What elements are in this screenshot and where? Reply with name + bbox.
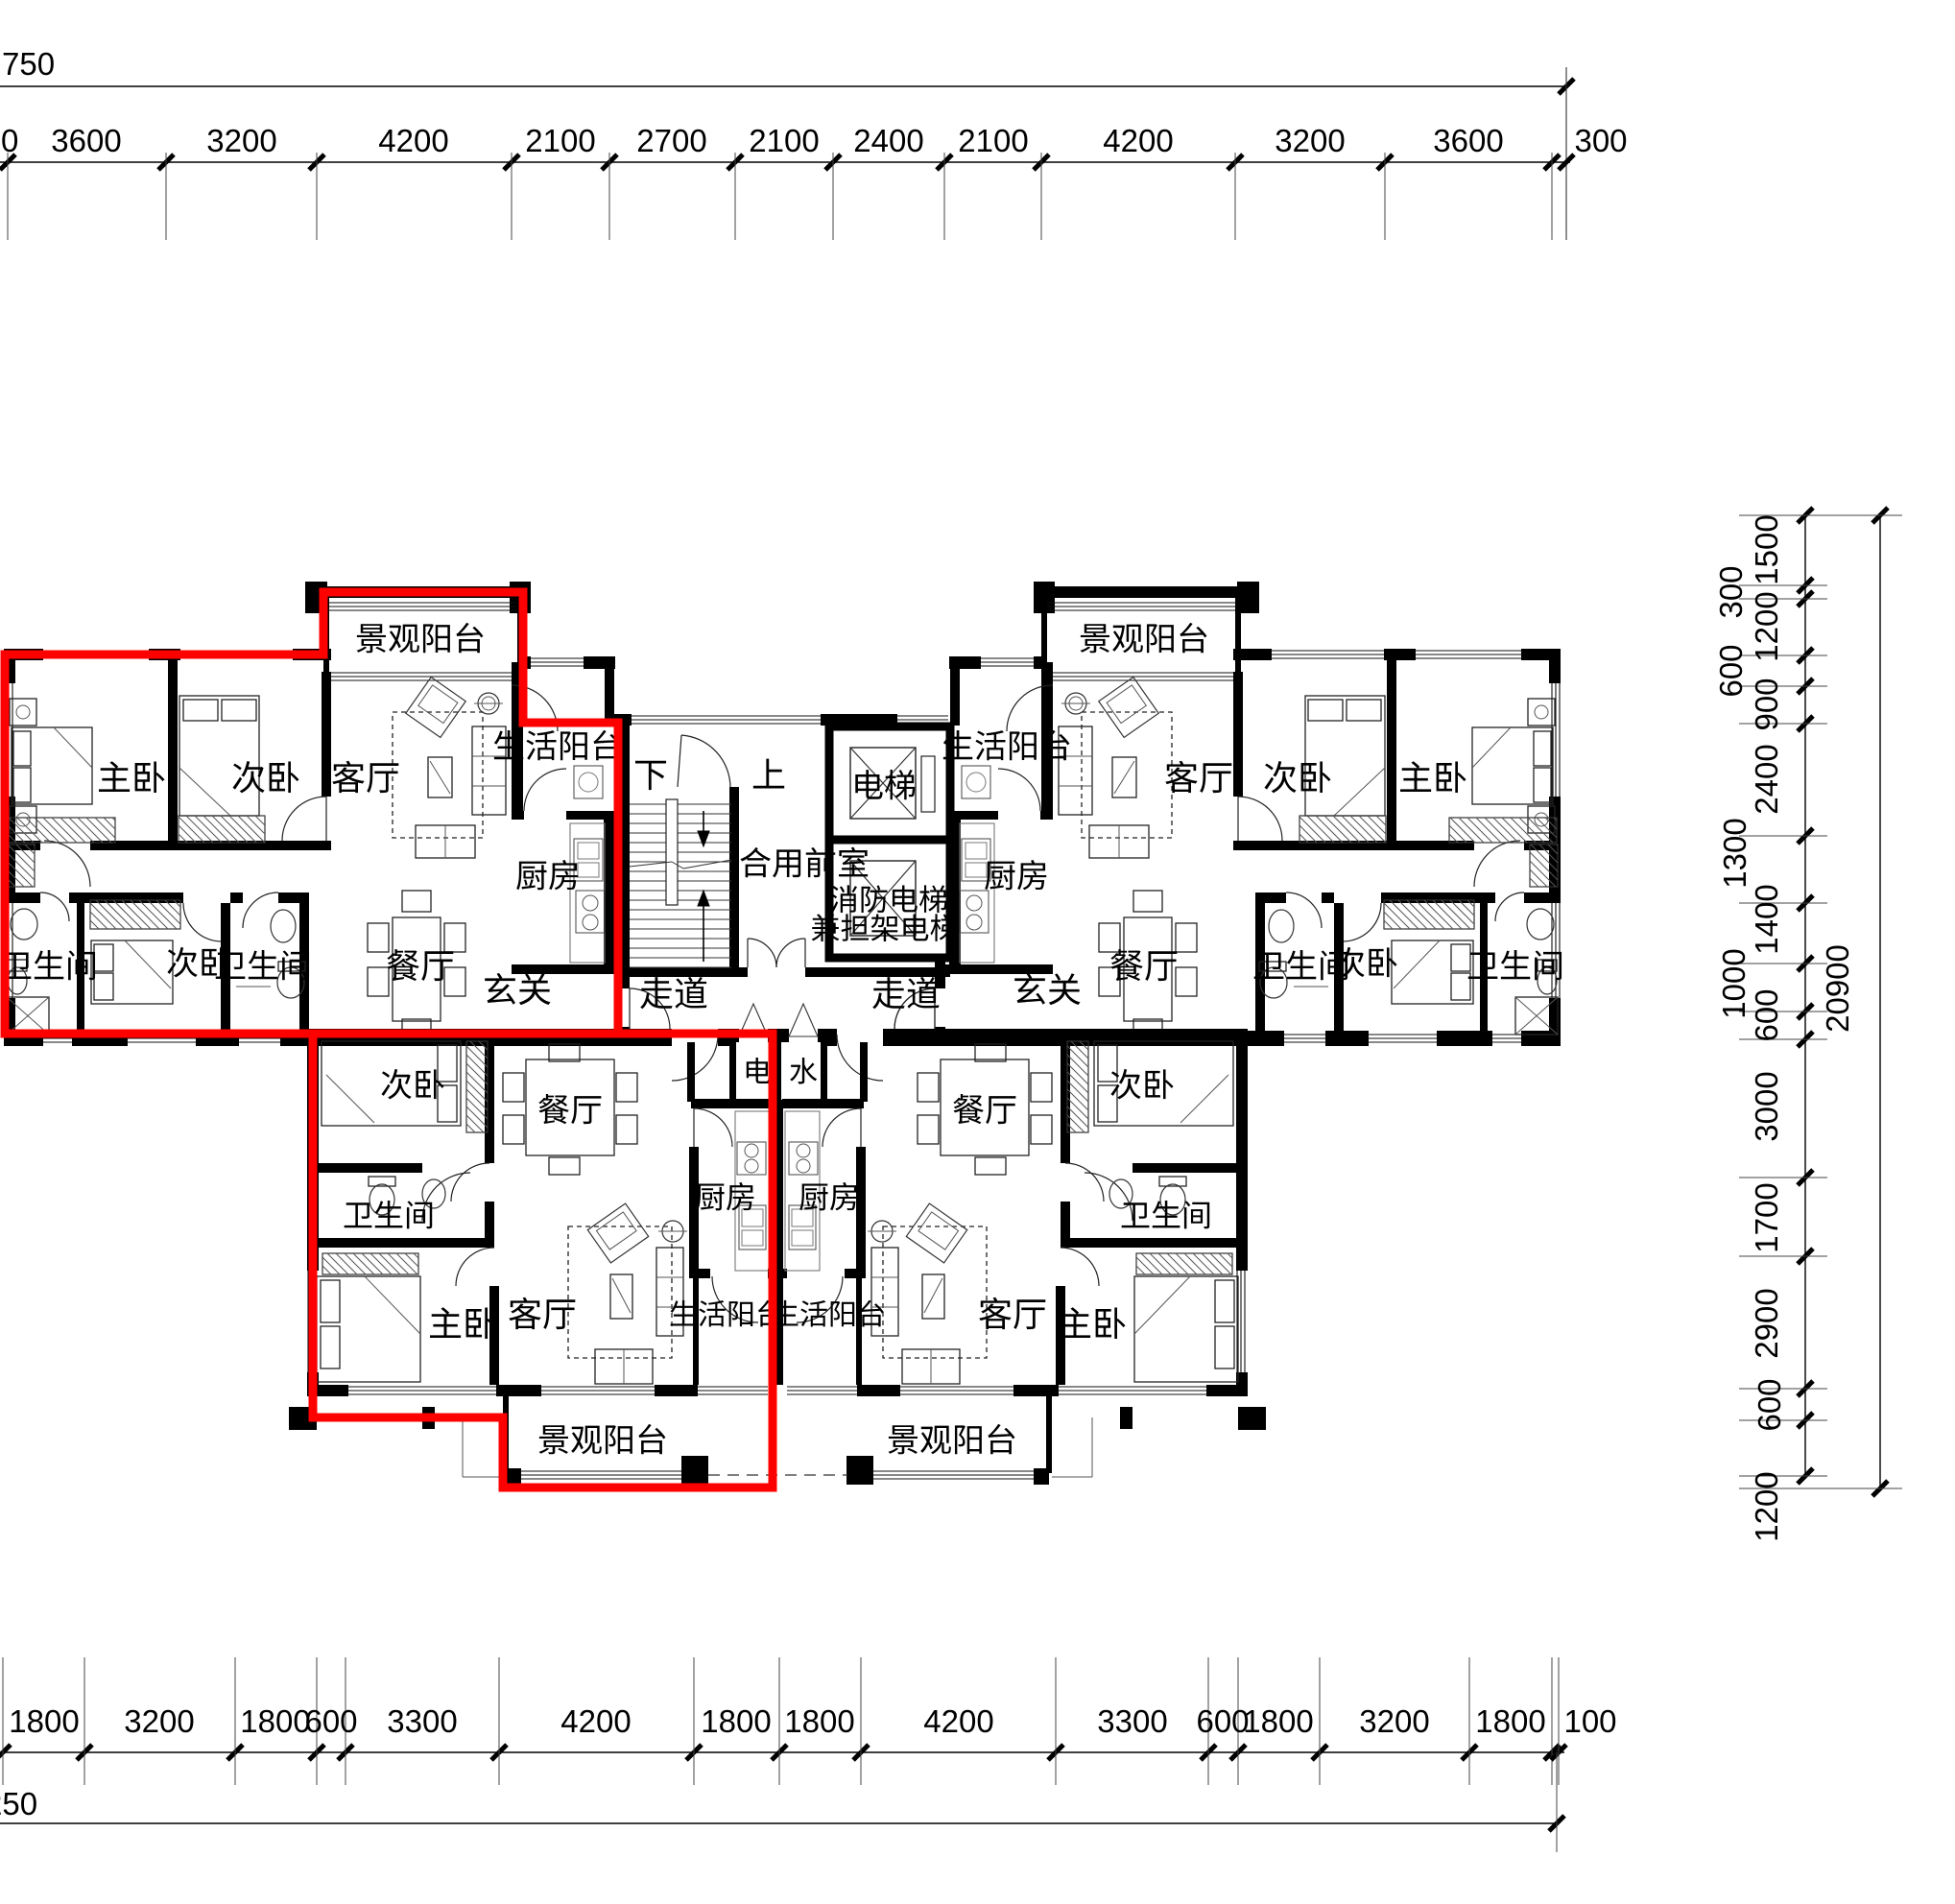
svg-text:600: 600 xyxy=(1713,644,1749,697)
svg-text:2100: 2100 xyxy=(525,123,595,158)
svg-text:3000: 3000 xyxy=(1749,1071,1784,1141)
svg-text:4200: 4200 xyxy=(378,123,448,158)
svg-text:600: 600 xyxy=(304,1703,357,1739)
svg-text:4200: 4200 xyxy=(923,1703,993,1739)
svg-text:2100: 2100 xyxy=(958,123,1028,158)
svg-text:1800: 1800 xyxy=(9,1703,79,1739)
svg-text:1000: 1000 xyxy=(1716,948,1752,1018)
svg-text:3300: 3300 xyxy=(387,1703,457,1739)
svg-text:3200: 3200 xyxy=(1275,123,1345,158)
svg-text:600: 600 xyxy=(1749,988,1784,1041)
svg-text:600: 600 xyxy=(1196,1703,1249,1739)
svg-text:4200: 4200 xyxy=(1103,123,1173,158)
svg-text:3600: 3600 xyxy=(51,123,121,158)
svg-text:0: 0 xyxy=(1,123,18,158)
svg-text:2900: 2900 xyxy=(1749,1288,1784,1358)
svg-text:3200: 3200 xyxy=(124,1703,194,1739)
svg-text:2700: 2700 xyxy=(636,123,706,158)
svg-text:750: 750 xyxy=(2,46,55,82)
svg-text:20900: 20900 xyxy=(1820,944,1855,1033)
svg-text:3200: 3200 xyxy=(1359,1703,1429,1739)
svg-text:100: 100 xyxy=(1563,1703,1616,1739)
svg-text:1300: 1300 xyxy=(1717,818,1752,888)
svg-text:600: 600 xyxy=(1752,1378,1787,1431)
svg-text:900: 900 xyxy=(1749,678,1784,730)
svg-text:3300: 3300 xyxy=(1097,1703,1167,1739)
svg-text:4200: 4200 xyxy=(560,1703,631,1739)
svg-text:1800: 1800 xyxy=(784,1703,854,1739)
svg-text:1800: 1800 xyxy=(1475,1703,1545,1739)
svg-text:1700: 1700 xyxy=(1749,1182,1784,1252)
svg-text:1800: 1800 xyxy=(1243,1703,1313,1739)
svg-text:1500: 1500 xyxy=(1749,514,1784,584)
svg-text:3200: 3200 xyxy=(206,123,276,158)
svg-text:1800: 1800 xyxy=(240,1703,310,1739)
svg-text:300: 300 xyxy=(1713,565,1749,618)
svg-text:3600: 3600 xyxy=(1433,123,1503,158)
svg-text:2400: 2400 xyxy=(853,123,923,158)
svg-text:1400: 1400 xyxy=(1749,884,1784,954)
svg-text:1200: 1200 xyxy=(1749,591,1784,661)
svg-text:300: 300 xyxy=(1574,123,1627,158)
svg-text:1800: 1800 xyxy=(701,1703,771,1739)
svg-text:2400: 2400 xyxy=(1749,744,1784,814)
svg-text:250: 250 xyxy=(0,1786,37,1821)
svg-text:2100: 2100 xyxy=(749,123,819,158)
svg-text:1200: 1200 xyxy=(1749,1471,1784,1541)
